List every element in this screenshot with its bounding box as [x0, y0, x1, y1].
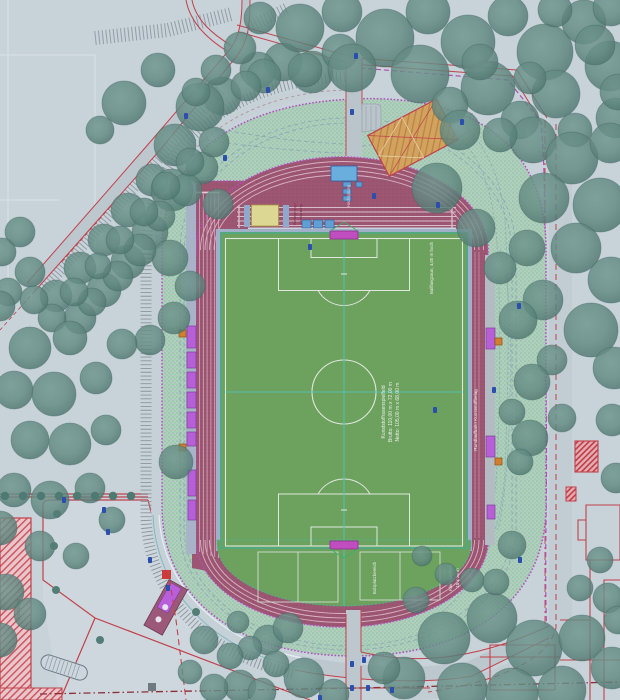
svg-text:Hochsprung: Hochsprung	[346, 184, 351, 207]
svg-text:Ballfangzaun, 4,00 m hoch: Ballfangzaun, 4,00 m hoch	[429, 241, 434, 294]
svg-text:Weitsprung /: Weitsprung /	[292, 202, 297, 225]
svg-text:Dreisprung: Dreisprung	[298, 204, 303, 224]
svg-text:Netto: 105,00 m x 68,00 m: Netto: 105,00 m x 68,00 m	[395, 383, 401, 442]
svg-text:Rundlaufbahn Kunststoffbelag: Rundlaufbahn Kunststoffbelag	[473, 389, 478, 451]
svg-text:Brutto: 110,00 m x 72,00 m: Brutto: 110,00 m x 72,00 m	[388, 382, 394, 442]
svg-text:Kunststoffrasenspielfeld: Kunststoffrasenspielfeld	[381, 385, 387, 438]
svg-text:Bolzplatzbereich: Bolzplatzbereich	[372, 561, 377, 594]
